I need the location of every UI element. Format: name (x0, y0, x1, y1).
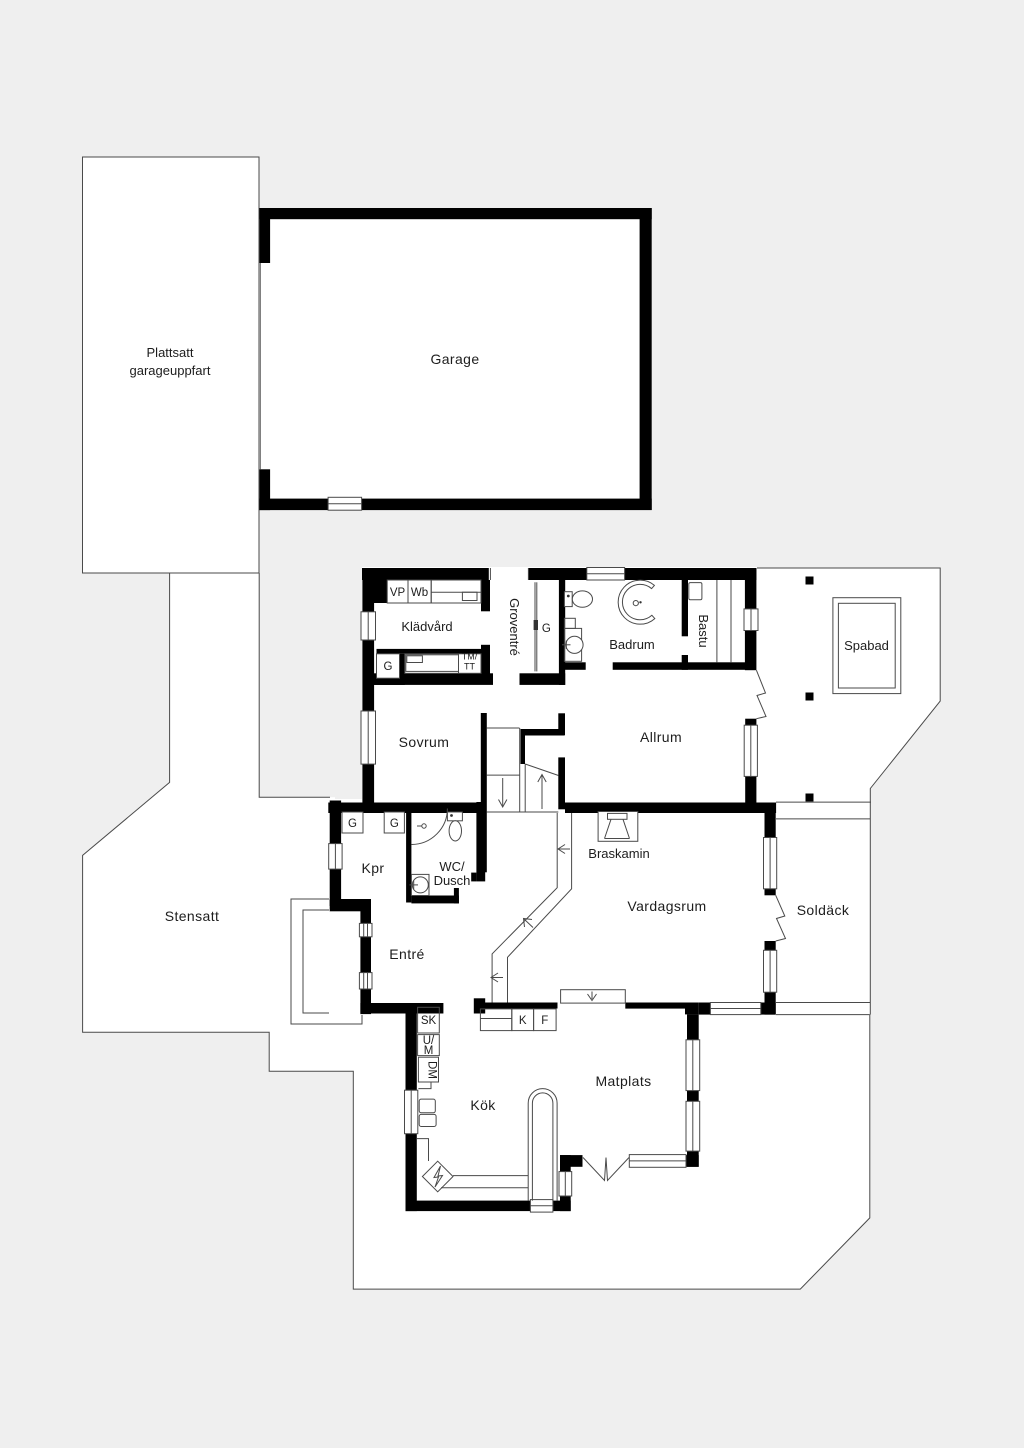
svg-text:Plattsatt: Plattsatt (147, 345, 194, 360)
svg-text:Groventré: Groventré (507, 598, 522, 656)
svg-text:SK: SK (421, 1015, 437, 1027)
svg-text:Kök: Kök (470, 1097, 496, 1113)
svg-text:Soldäck: Soldäck (797, 902, 850, 918)
svg-text:F: F (541, 1015, 548, 1027)
svg-text:TM/: TM/ (462, 652, 478, 662)
svg-text:G: G (348, 818, 357, 830)
svg-text:Matplats: Matplats (595, 1073, 651, 1089)
svg-text:G: G (542, 623, 551, 635)
svg-text:DM: DM (426, 1061, 438, 1079)
svg-text:Sovrum: Sovrum (399, 734, 450, 750)
svg-text:Braskamin: Braskamin (588, 846, 649, 861)
svg-text:Garage: Garage (430, 351, 479, 367)
svg-text:Kpr: Kpr (362, 860, 385, 876)
svg-text:WC/: WC/ (439, 859, 465, 874)
svg-text:M: M (424, 1045, 434, 1057)
svg-text:Badrum: Badrum (609, 637, 655, 652)
svg-text:Entré: Entré (389, 946, 424, 962)
svg-text:Vardagsrum: Vardagsrum (627, 898, 706, 914)
svg-text:Stensatt: Stensatt (165, 908, 220, 924)
svg-text:K: K (519, 1015, 527, 1027)
svg-text:G: G (384, 661, 393, 673)
svg-text:Klädvård: Klädvård (401, 619, 452, 634)
svg-text:G: G (390, 818, 399, 830)
svg-text:TT: TT (464, 662, 475, 672)
svg-text:Dusch: Dusch (434, 873, 471, 888)
svg-text:Bastu: Bastu (696, 614, 711, 647)
svg-text:VP: VP (390, 587, 406, 599)
svg-text:Wb: Wb (411, 587, 428, 599)
svg-text:Spabad: Spabad (844, 638, 889, 653)
svg-text:Allrum: Allrum (640, 729, 682, 745)
svg-text:garageuppfart: garageuppfart (130, 363, 211, 378)
